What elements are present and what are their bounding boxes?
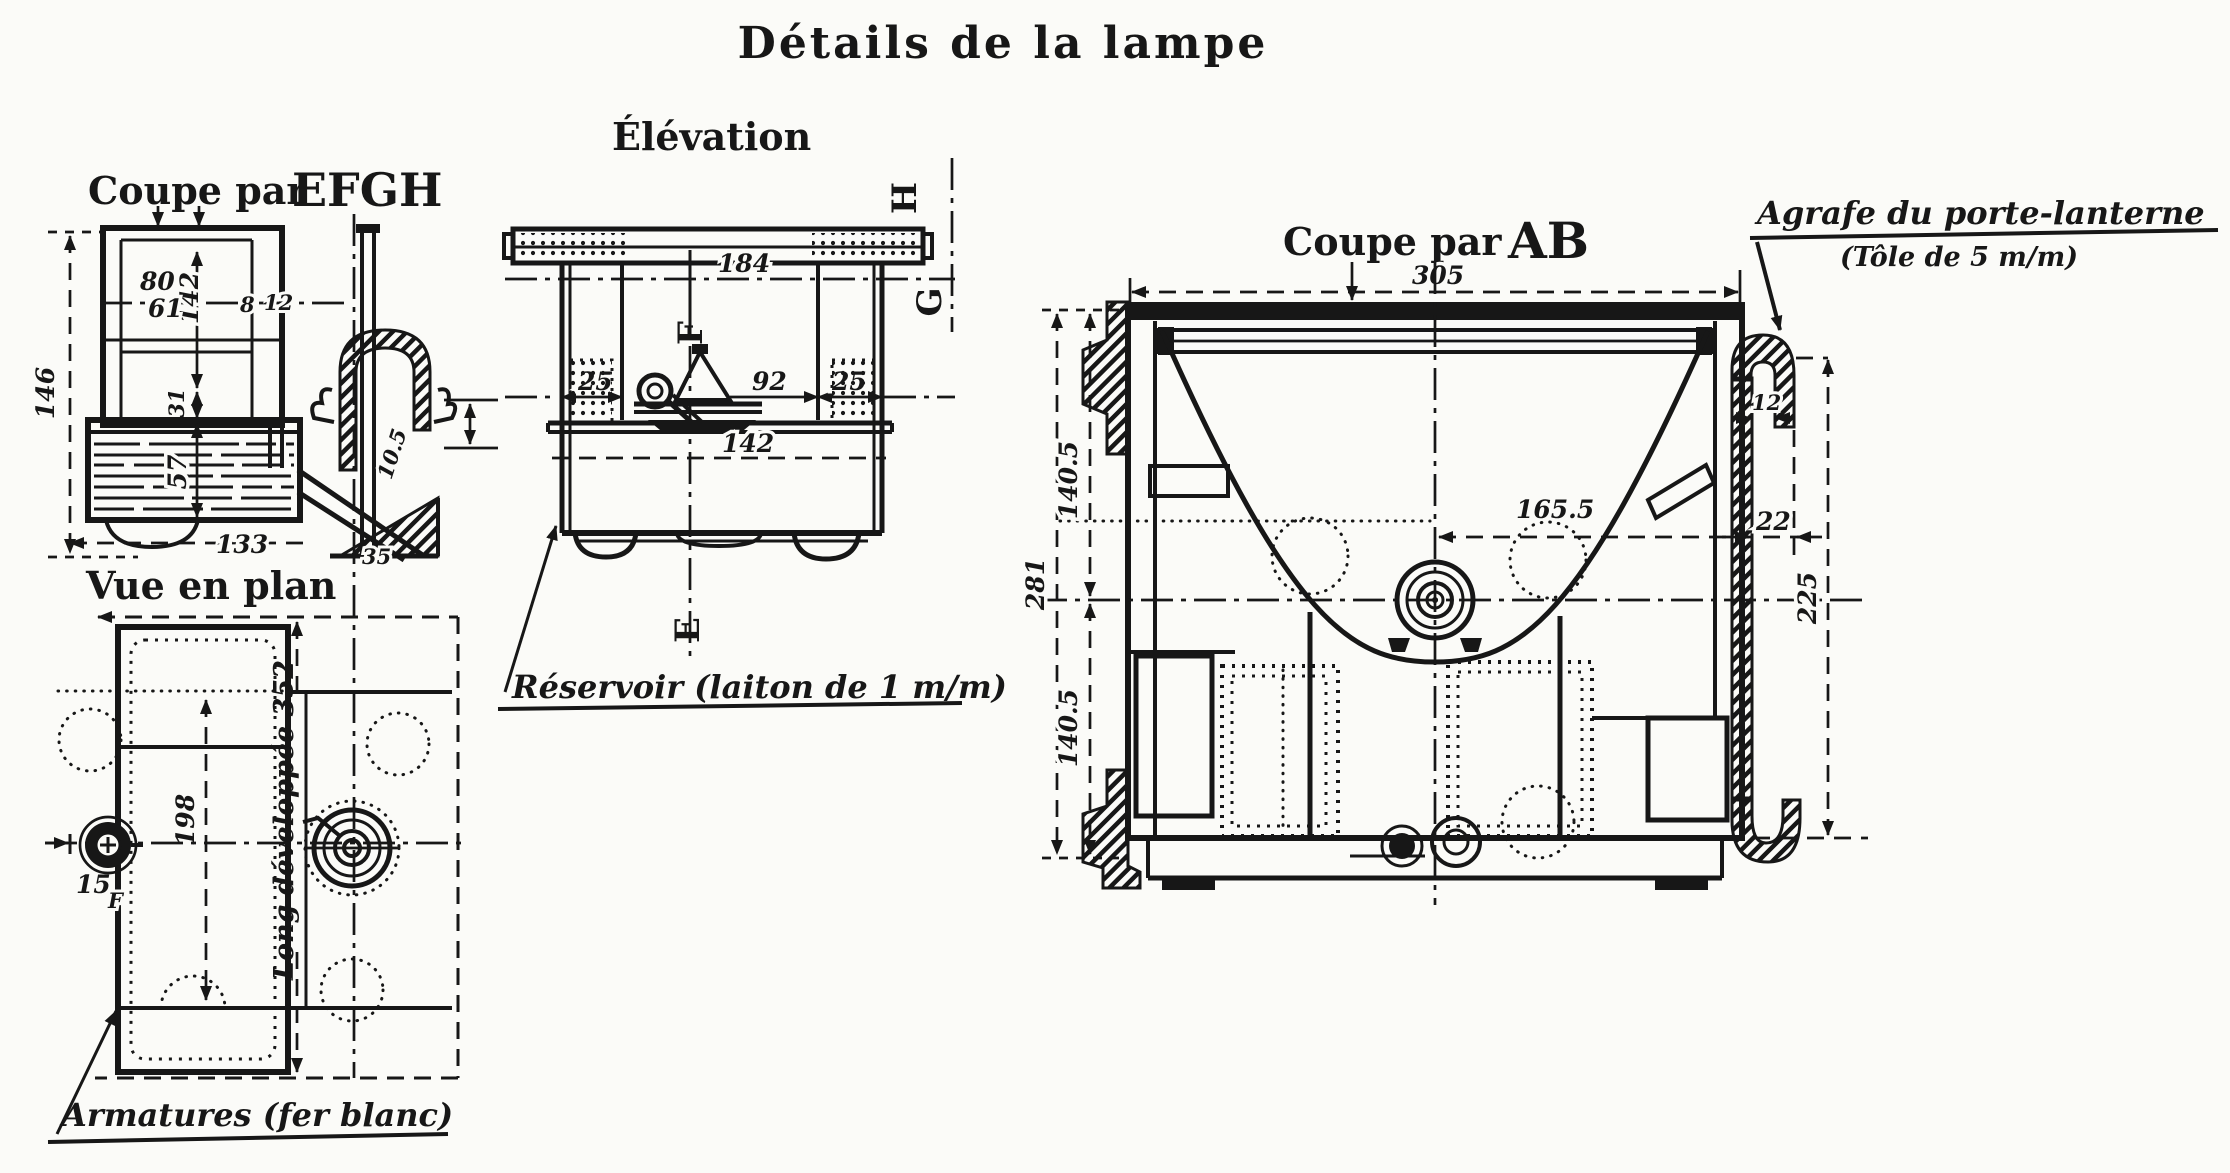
view-coupe-ab: Coupe par AB 305 165.5 (1021, 194, 2218, 905)
plan-dotted-arc (161, 976, 225, 1008)
elevation-dim-184: 184 (718, 249, 770, 278)
efgh-dim-35: 35 (362, 544, 391, 569)
ab-dim-140-5-lower: 140.5 (1054, 689, 1083, 767)
agrafe-label-line2: (Tôle de 5 m/m) (1840, 242, 2078, 273)
view-coupe-efgh: Coupe par EFGH 146 142 80 61 8 12 31 (31, 163, 498, 1078)
ab-dim-165-5: 165.5 (1516, 495, 1594, 524)
plan-winder-knob (303, 801, 400, 895)
elevation-title: Élévation (612, 114, 811, 159)
ab-dim-140-5-upper: 140.5 (1054, 441, 1083, 519)
lamp-technical-drawing-page: Détails de la lampe Coupe par EFGH 146 1… (0, 0, 2230, 1173)
efgh-dim-31: 31 (164, 388, 189, 417)
ab-dim-22: 22 (1755, 507, 1791, 536)
ab-title-prefix: Coupe par (1283, 219, 1502, 264)
efgh-dim-12: 12 (264, 290, 293, 315)
section-letter-f: F (671, 321, 711, 345)
ab-burner (1388, 562, 1482, 652)
elevation-dim-142: 142 (722, 429, 774, 458)
plan-dotted-circle-1 (59, 709, 121, 771)
plan-dotted-circle-2 (367, 713, 429, 775)
ab-dim-281: 281 (1021, 558, 1050, 611)
elevation-tank (548, 423, 892, 559)
ab-bracket-bottom-left (1083, 770, 1140, 888)
view-vue-en-plan: Vue en plan 198 Long développée 352 15 F (45, 563, 468, 1142)
agrafe-annotation: Agrafe du porte-lanterne (Tôle de 5 m/m) (1750, 194, 2218, 330)
efgh-dim-146: 146 (31, 367, 60, 419)
plan-dim-198: 198 (171, 794, 200, 846)
efgh-dim-10-5: 10.5 (372, 425, 412, 481)
efgh-title-letters: EFGH (292, 163, 442, 217)
ab-dim-12: 12 (1752, 390, 1781, 415)
elevation-burner (634, 344, 762, 430)
ab-dotted-circle-left (1272, 518, 1348, 594)
page-title: Détails de la lampe (738, 18, 1269, 69)
armatures-label: Armatures (fer blanc) (59, 1096, 453, 1134)
view-elevation: Élévation H G 184 F (498, 114, 1007, 709)
ab-title-letters: AB (1507, 211, 1589, 270)
efgh-dim-61: 61 (148, 294, 183, 323)
plan-dotted-circle-3 (321, 959, 383, 1021)
section-letter-g: G (910, 287, 950, 316)
ab-dim-305: 305 (1412, 261, 1464, 290)
efgh-dim-57: 57 (163, 454, 192, 489)
section-letter-h: H (885, 182, 925, 214)
plan-letter-f: F (107, 888, 125, 913)
plan-title: Vue en plan (85, 563, 336, 608)
elevation-dim-92: 92 (752, 367, 787, 396)
ab-lower-compartment (1130, 612, 1727, 866)
efgh-dim-8: 8 (239, 292, 255, 317)
plan-dim-15: 15 (76, 870, 111, 899)
reservoir-label: Réservoir (laiton de 1 m/m) (511, 668, 1007, 706)
plan-filler-knob (80, 817, 143, 873)
ab-dotted-circle-right (1510, 522, 1586, 598)
section-letter-e: E (668, 617, 708, 643)
plan-dim-352: Long développée 352 (269, 660, 300, 981)
efgh-dim-80: 80 (139, 267, 175, 296)
ab-dim-225: 225 (1793, 572, 1822, 625)
efgh-dim-133: 133 (216, 530, 268, 559)
agrafe-label-line1: Agrafe du porte-lanterne (1754, 194, 2205, 232)
technical-drawing-canvas: Détails de la lampe Coupe par EFGH 146 1… (0, 0, 2230, 1173)
